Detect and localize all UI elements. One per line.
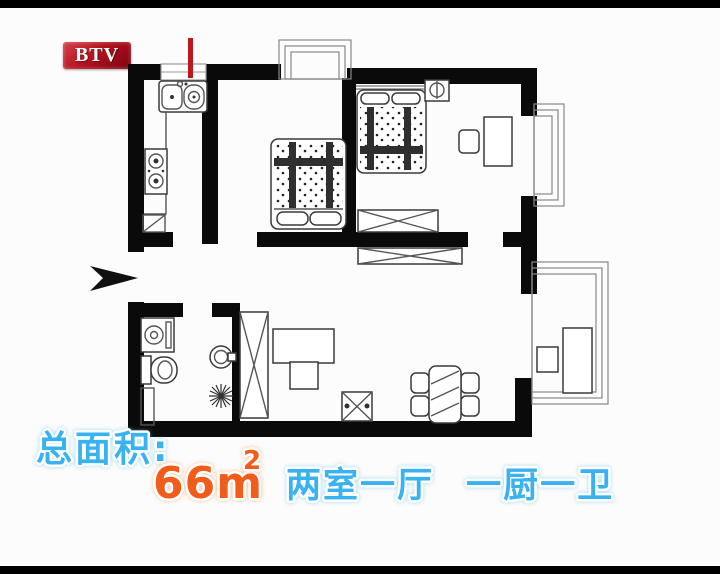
- caption-overlay: 总面积: 66m 2 两室一厅 一厨一卫: [36, 429, 614, 509]
- tv-frame: BTV: [0, 0, 720, 574]
- floor-plan-canvas: 总面积: 66m 2 两室一厅 一厨一卫: [0, 0, 720, 574]
- nightstand-lamp-icon: [425, 80, 449, 101]
- red-marker-icon: [188, 38, 193, 78]
- kitchen: [143, 81, 207, 232]
- toilet-icon: [141, 356, 177, 384]
- entrance-arrow-icon: [90, 266, 138, 291]
- bay-window-icon: [279, 40, 351, 79]
- wardrobe-x-icon: [240, 312, 268, 418]
- chair-icon: [459, 130, 479, 153]
- desk-icon: [273, 329, 334, 389]
- rooms-description: 两室一厅 一厨一卫: [286, 465, 614, 506]
- cabinet-icon: [143, 215, 165, 232]
- letterbox-bottom: [0, 566, 720, 574]
- bedroom-1: [271, 139, 346, 229]
- bed-bench-x-icon: [358, 210, 438, 232]
- balcony: [532, 262, 608, 404]
- stool-x-icon: [342, 392, 372, 421]
- floor-drain-icon: [209, 384, 233, 408]
- kitchen-sink-icon: [159, 81, 207, 112]
- double-bed-icon: [271, 139, 346, 229]
- stove-icon: [145, 149, 167, 194]
- area-exponent: 2: [243, 446, 261, 476]
- tv-cabinet-x-icon: [358, 248, 462, 264]
- bedroom-2: [357, 80, 512, 232]
- single-bed-icon: [357, 90, 426, 173]
- bathroom: [141, 318, 236, 425]
- kitchen-window: [161, 64, 206, 80]
- dining-table-icon: [411, 366, 479, 423]
- window-line: [356, 86, 424, 89]
- chair-icon: [537, 347, 558, 372]
- living-dining-room: [240, 248, 479, 423]
- balcony-table-icon: [563, 328, 592, 393]
- desk-icon: [484, 117, 512, 166]
- washing-machine-icon: [141, 318, 174, 352]
- total-area-label: 总面积:: [36, 429, 170, 470]
- bay-window-icon: [534, 104, 564, 206]
